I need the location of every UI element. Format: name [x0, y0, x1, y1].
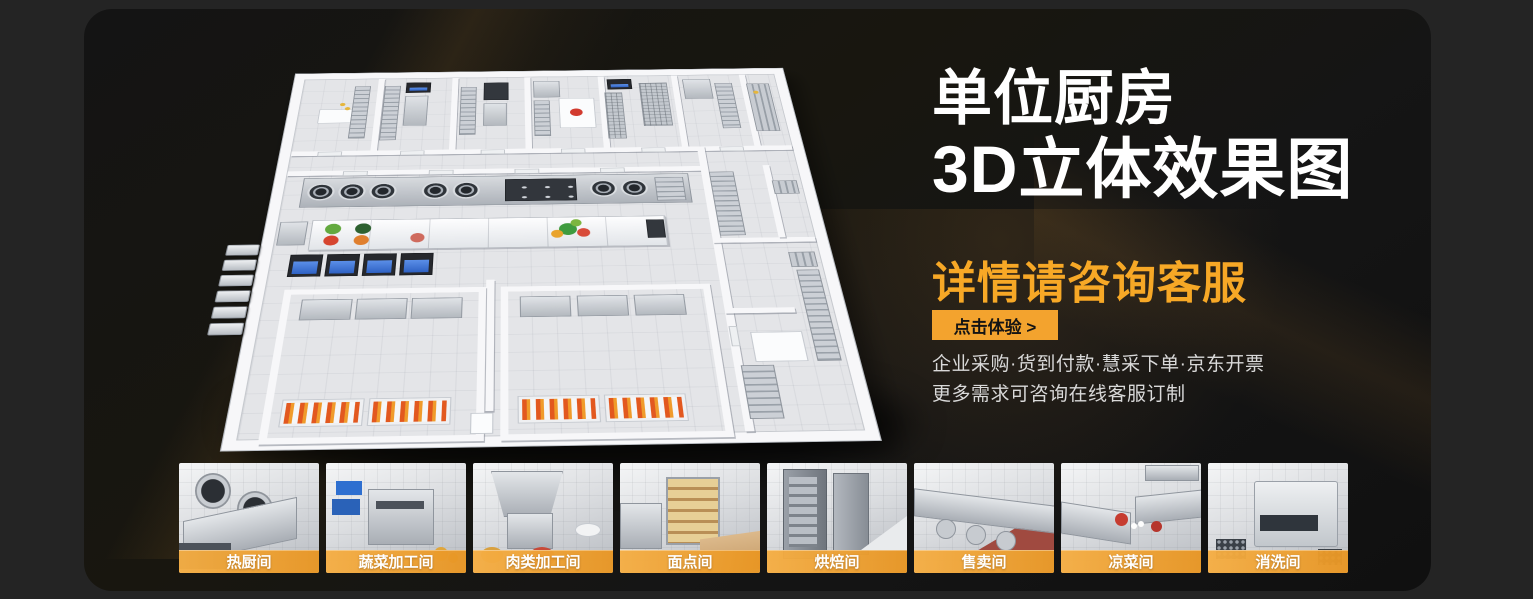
- wok-pot: [195, 473, 231, 509]
- door: [429, 170, 454, 175]
- door: [600, 168, 625, 173]
- oven-column: [833, 473, 869, 555]
- meat-item: [570, 108, 583, 116]
- steel-shelf: [654, 177, 686, 201]
- door: [514, 169, 539, 174]
- monitor-stand: [646, 219, 666, 237]
- steel-counter: [1135, 489, 1201, 524]
- thumbnail-sales-room[interactable]: 售卖间: [914, 463, 1054, 573]
- dishwasher-machine: [1254, 481, 1338, 547]
- oven-racks: [789, 477, 817, 547]
- proofing-rack: [666, 477, 720, 545]
- hero-copy: 单位厨房 3D立体效果图 详情请咨询客服 点击体验 > 企业采购·货到付款·慧采…: [932, 9, 1427, 439]
- thumbnail-vegetable-processing[interactable]: 蔬菜加工间: [326, 463, 466, 573]
- thumbnail-pastry-room[interactable]: 面点间: [620, 463, 760, 573]
- promo-banner-panel: 单位厨房 3D立体效果图 详情请咨询客服 点击体验 > 企业采购·货到付款·慧采…: [84, 9, 1431, 591]
- service-stand: [470, 413, 494, 434]
- soup-pot: [966, 525, 986, 545]
- hero-subtitle: 详情请咨询客服: [932, 247, 1247, 311]
- steel-shelf: [459, 87, 477, 135]
- thumbnail-meat-processing[interactable]: 肉类加工间: [473, 463, 613, 573]
- service-cart: [218, 275, 254, 287]
- steam-cabinet: [607, 79, 633, 89]
- food-tray-panel: [605, 394, 688, 421]
- thumbnail-label: 面点间: [620, 550, 760, 573]
- floor-grate: [772, 180, 800, 194]
- soup-pot: [936, 519, 956, 539]
- service-cart: [225, 244, 260, 255]
- cooking-range: [484, 83, 509, 101]
- rice-steamer: [324, 254, 360, 277]
- dough-machine: [620, 503, 662, 549]
- service-cart: [207, 323, 244, 336]
- food-item: [753, 91, 759, 94]
- steam-cabinet: [406, 82, 432, 92]
- cutting-machine: [368, 489, 434, 545]
- gas-range: [505, 178, 577, 201]
- steel-counter: [483, 103, 507, 126]
- bottle: [1138, 521, 1144, 527]
- floor-grate: [788, 252, 818, 267]
- thumbnail-label: 售卖间: [914, 550, 1054, 573]
- rice-steamer: [399, 253, 434, 276]
- steel-counter: [403, 96, 429, 126]
- thumbnail-label: 烘焙间: [767, 550, 907, 573]
- door: [343, 171, 368, 176]
- wall-shelf: [1145, 465, 1199, 481]
- cold-dish-plate: [1115, 513, 1128, 526]
- food-plate: [575, 523, 601, 537]
- sink-unit: [276, 222, 308, 246]
- door: [481, 149, 505, 154]
- cta-button[interactable]: 点击体验 >: [932, 310, 1058, 340]
- hero-info-line2: 更多需求可咨询在线客服订制: [932, 380, 1264, 410]
- steel-shelf: [534, 100, 552, 136]
- door: [719, 146, 744, 151]
- serving-counter: [577, 295, 630, 316]
- service-cart: [215, 290, 251, 302]
- door: [641, 147, 666, 152]
- hero-info: 企业采购·货到付款·慧采下单·京东开票 更多需求可咨询在线客服订制: [932, 350, 1264, 410]
- grinder-body: [507, 513, 553, 549]
- thumbnail-cold-dish-room[interactable]: 凉菜间: [1061, 463, 1201, 573]
- blue-crate: [336, 481, 362, 495]
- hero-info-line1: 企业采购·货到付款·慧采下单·京东开票: [932, 350, 1264, 380]
- door: [400, 150, 425, 155]
- machine-slot: [376, 501, 424, 509]
- hero-title-line2: 3D立体效果图: [932, 135, 1353, 204]
- rice-steamer: [287, 254, 324, 277]
- food-tray-panel: [279, 399, 363, 426]
- thumbnail-baking-room[interactable]: 烘焙间: [767, 463, 907, 573]
- serving-counter: [634, 294, 687, 315]
- floorplan-building: [220, 68, 882, 452]
- serving-counter: [411, 297, 463, 318]
- meat-grinder-hopper: [491, 471, 563, 517]
- door: [317, 152, 342, 157]
- serving-counter: [520, 296, 572, 317]
- kitchen-3d-floorplan: [204, 9, 884, 529]
- blue-crate: [332, 499, 360, 515]
- fridge: [533, 81, 560, 98]
- serving-line: [914, 488, 1054, 533]
- thumbnail-label: 消洗间: [1208, 550, 1348, 573]
- thumbnail-hot-kitchen[interactable]: 热厨间: [179, 463, 319, 573]
- serving-counter: [299, 299, 353, 321]
- door: [561, 148, 586, 153]
- serving-counter: [355, 298, 408, 319]
- hero-title-line1: 单位厨房: [932, 67, 1176, 130]
- rice-steamer: [362, 253, 397, 276]
- thumbnail-washing-room[interactable]: 消洗间: [1208, 463, 1348, 573]
- service-cart: [211, 306, 248, 318]
- thumbnail-label: 肉类加工间: [473, 550, 613, 573]
- service-cart: [222, 259, 257, 271]
- work-table: [750, 331, 809, 362]
- dishwasher-opening: [1260, 515, 1318, 531]
- cold-dish-plate: [1151, 521, 1162, 532]
- wall: [724, 307, 795, 313]
- thumbnail-label: 凉菜间: [1061, 550, 1201, 573]
- thumbnail-label: 蔬菜加工间: [326, 550, 466, 573]
- bottle: [1131, 523, 1137, 529]
- room-thumbnail-row: 热厨间 蔬菜加工间 肉类加工间: [179, 463, 1348, 573]
- thumbnail-label: 热厨间: [179, 550, 319, 573]
- food-tray-panel: [368, 398, 450, 425]
- food-tray-panel: [519, 396, 600, 423]
- soup-pot: [996, 531, 1016, 551]
- fridge: [682, 79, 714, 99]
